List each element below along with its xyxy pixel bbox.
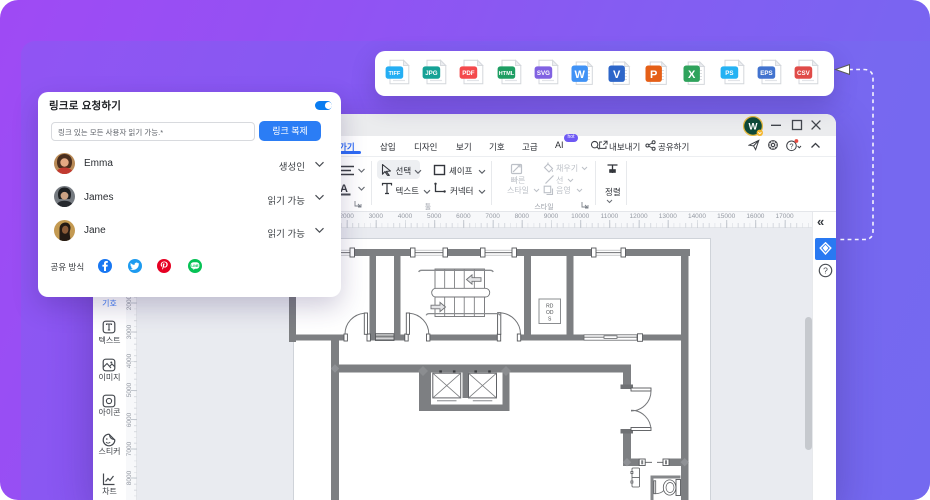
svg-text:W: W xyxy=(749,121,758,132)
svg-text:SVG: SVG xyxy=(537,70,550,77)
svg-text:A: A xyxy=(340,183,348,195)
svg-text:RD: RD xyxy=(546,304,554,310)
svg-text:?: ? xyxy=(789,142,793,151)
svg-text:X: X xyxy=(688,69,696,81)
svg-text:HTML: HTML xyxy=(498,71,514,77)
svg-text:PDF: PDF xyxy=(463,70,476,77)
svg-text:PS: PS xyxy=(725,70,733,77)
svg-text:V: V xyxy=(613,69,621,81)
svg-text:CSV: CSV xyxy=(797,70,811,77)
svg-text:?: ? xyxy=(823,266,828,276)
svg-text:LINE: LINE xyxy=(191,264,198,268)
svg-text:EPS: EPS xyxy=(760,70,772,77)
svg-text:OD: OD xyxy=(546,310,554,316)
svg-text:JPG: JPG xyxy=(425,70,438,77)
svg-text:TIFF: TIFF xyxy=(388,71,400,77)
svg-text:P: P xyxy=(650,69,657,81)
svg-text:W: W xyxy=(575,69,586,81)
